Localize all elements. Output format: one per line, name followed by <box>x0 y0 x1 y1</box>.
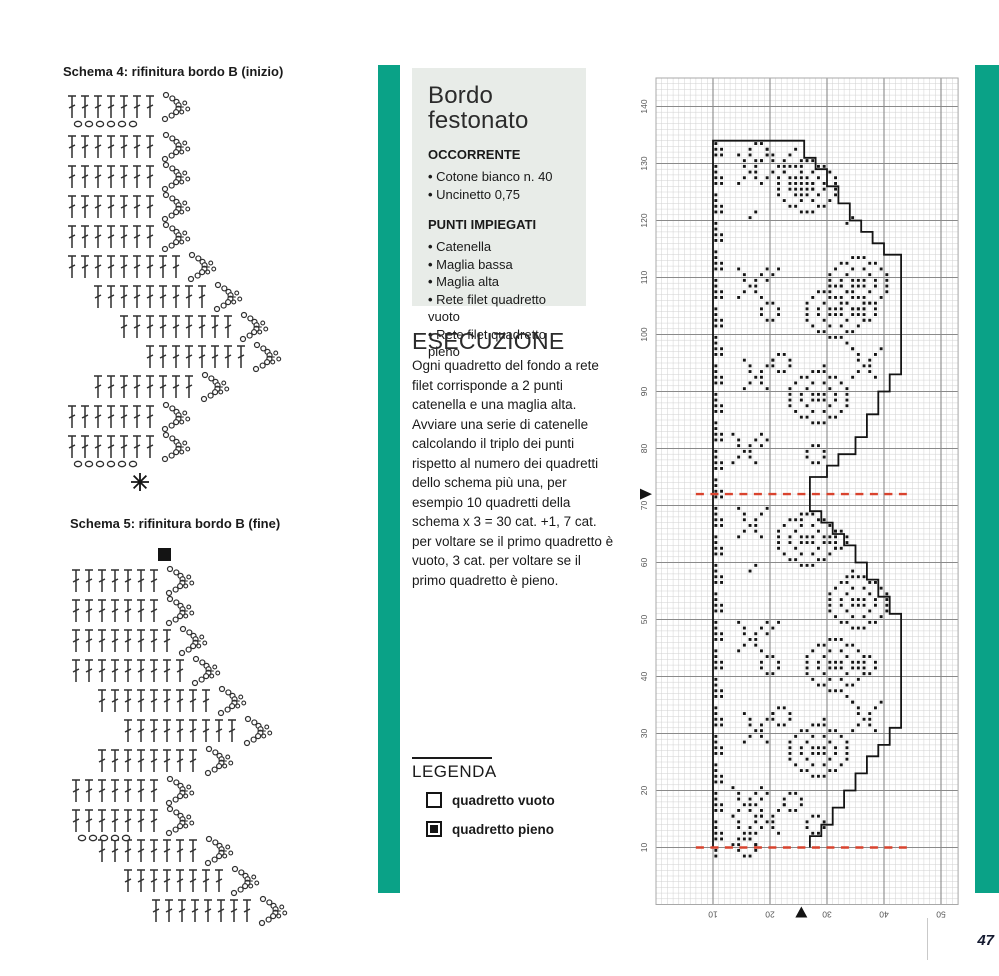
materials-box: Bordo festonato OCCORRENTE Cotone bianco… <box>412 68 586 306</box>
legend-item-filled: quadretto pieno <box>426 821 554 837</box>
filet-chart: 1020304050607080901001101201301401020304… <box>638 58 968 930</box>
page-number: 47 <box>928 932 994 949</box>
svg-text:30: 30 <box>639 729 649 739</box>
separator-bar-right <box>975 65 999 893</box>
svg-text:20: 20 <box>639 786 649 796</box>
schema5-diagram <box>60 546 380 946</box>
list-item: Maglia bassa <box>428 256 572 274</box>
legend-label: quadretto vuoto <box>452 793 555 808</box>
filled-square-icon <box>426 821 442 837</box>
legend-label: quadretto pieno <box>452 822 554 837</box>
list-item: Catenella <box>428 238 572 256</box>
svg-text:80: 80 <box>639 444 649 454</box>
svg-text:90: 90 <box>639 387 649 397</box>
svg-text:70: 70 <box>639 501 649 511</box>
occorrente-list: Cotone bianco n. 40 Uncinetto 0,75 <box>428 168 572 203</box>
section-heading-punti: PUNTI IMPIEGATI <box>428 217 572 232</box>
list-item: Maglia alta <box>428 273 572 291</box>
svg-text:120: 120 <box>639 213 649 227</box>
svg-text:50: 50 <box>936 910 946 920</box>
svg-text:50: 50 <box>639 615 649 625</box>
row-marker-triangle <box>640 489 652 500</box>
legend-item-empty: quadretto vuoto <box>426 792 555 808</box>
svg-text:20: 20 <box>765 910 775 920</box>
legend-heading: LEGENDA <box>412 762 497 782</box>
svg-text:100: 100 <box>639 327 649 341</box>
svg-text:110: 110 <box>639 270 649 284</box>
article-title-line2: festonato <box>428 108 572 133</box>
svg-text:10: 10 <box>708 910 718 920</box>
list-item: Uncinetto 0,75 <box>428 186 572 204</box>
esecuzione-heading: ESECUZIONE <box>412 328 565 355</box>
svg-text:60: 60 <box>639 558 649 568</box>
list-item: Cotone bianco n. 40 <box>428 168 572 186</box>
column-marker-triangle <box>795 907 807 918</box>
svg-text:140: 140 <box>639 99 649 113</box>
article-title: Bordo festonato <box>428 83 572 133</box>
section-heading-occorrente: OCCORRENTE <box>428 147 572 162</box>
empty-square-icon <box>426 792 442 808</box>
svg-text:40: 40 <box>639 672 649 682</box>
legend-rule <box>412 757 492 759</box>
svg-text:30: 30 <box>822 910 832 920</box>
schema4-title: Schema 4: rifinitura bordo B (inizio) <box>63 64 283 79</box>
separator-bar-left <box>378 65 400 893</box>
magazine-page: Schema 4: rifinitura bordo B (inizio) Sc… <box>0 0 999 976</box>
esecuzione-text: Ogni quadretto del fondo a rete filet co… <box>412 356 614 590</box>
list-item: Rete filet quadretto vuoto <box>428 291 572 326</box>
svg-text:130: 130 <box>639 156 649 170</box>
schema5-title: Schema 5: rifinitura bordo B (fine) <box>70 516 280 531</box>
svg-text:10: 10 <box>639 843 649 853</box>
svg-text:40: 40 <box>879 910 889 920</box>
article-title-line1: Bordo <box>428 83 572 108</box>
schema4-diagram <box>56 88 376 508</box>
